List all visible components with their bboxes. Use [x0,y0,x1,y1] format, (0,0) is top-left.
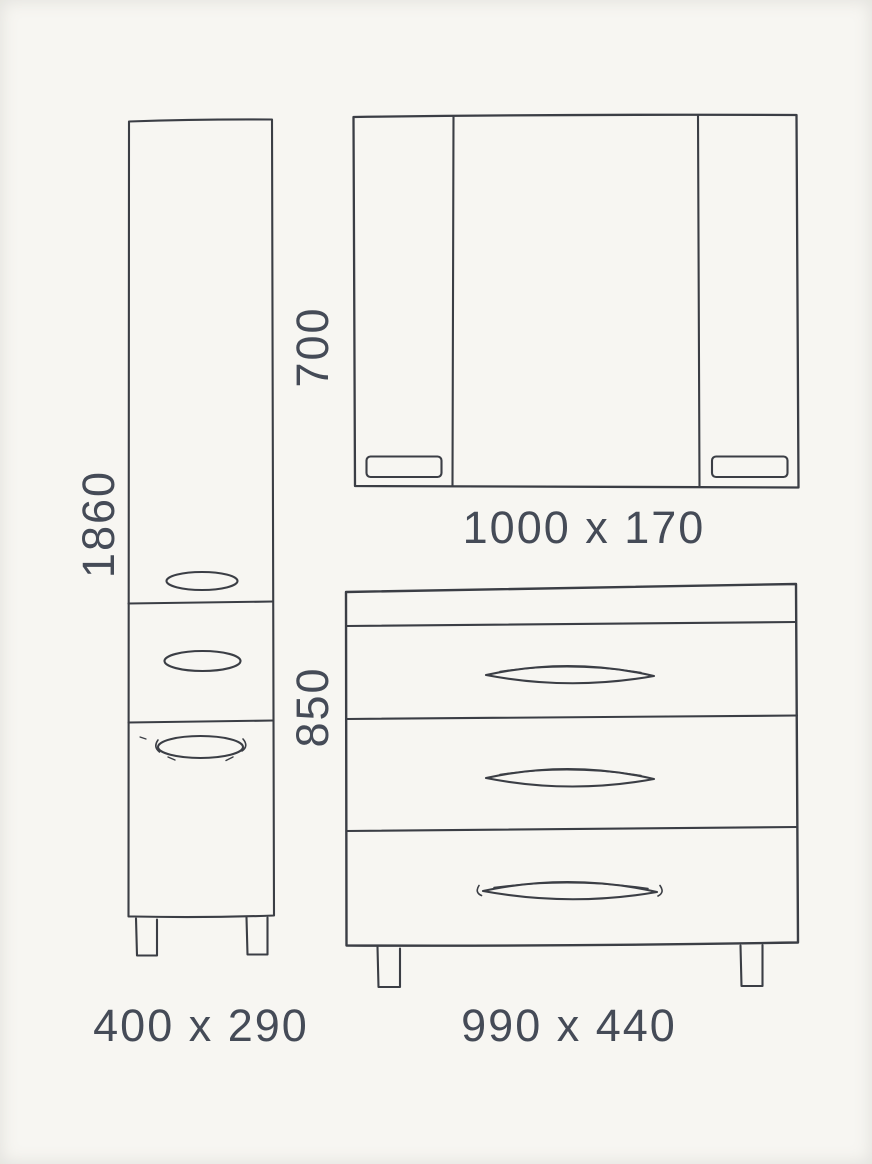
mirror-cabinet-outline [354,115,799,488]
tall-cabinet-footprint-label: 400 x 290 [51,1001,351,1051]
tall-cabinet-drawer-handle [165,651,241,671]
mirror-cabinet-left-divider [453,117,454,486]
vanity-height-label: 850 [288,632,338,782]
mirror-cabinet-right-door-handle [712,457,788,478]
tall-cabinet-door-handle [167,572,238,590]
mirror-cabinet-left-door-handle [367,457,442,478]
vanity-drawer-handle-2 [486,769,654,787]
vanity-drawer-handle-1 [486,666,654,683]
mirror-cabinet-height-label: 700 [288,272,338,422]
tall-cabinet-left-leg [136,919,157,956]
vanity-outline [346,584,798,946]
furniture-line-art [0,0,872,1164]
tall-cabinet-divider-bottom [129,721,274,723]
vanity-left-leg [378,947,401,987]
tall-cabinet-bottom-door-handle [140,736,246,761]
diagram-canvas: 1860 400 x 290 700 1000 x 170 850 990 x … [0,0,872,1164]
vanity-drawer-divider-2 [347,827,798,831]
mirror-cabinet-footprint-label: 1000 x 170 [434,503,734,553]
mirror-cabinet [354,115,799,488]
mirror-cabinet-right-divider [698,116,700,487]
tall-cabinet-divider-top [129,602,274,604]
tall-cabinet-outline [129,119,275,917]
vanity-drawer-handle-3 [477,882,662,899]
vanity-footprint-label: 990 x 440 [419,1001,719,1051]
vanity-right-leg [741,945,763,986]
tall-cabinet-right-leg [247,918,268,955]
vanity-countertop-line [347,622,797,626]
tall-cabinet-height-label: 1860 [74,444,124,604]
vanity-drawer-divider-1 [347,716,798,720]
tall-cabinet [129,119,275,955]
vanity-unit [346,584,798,987]
